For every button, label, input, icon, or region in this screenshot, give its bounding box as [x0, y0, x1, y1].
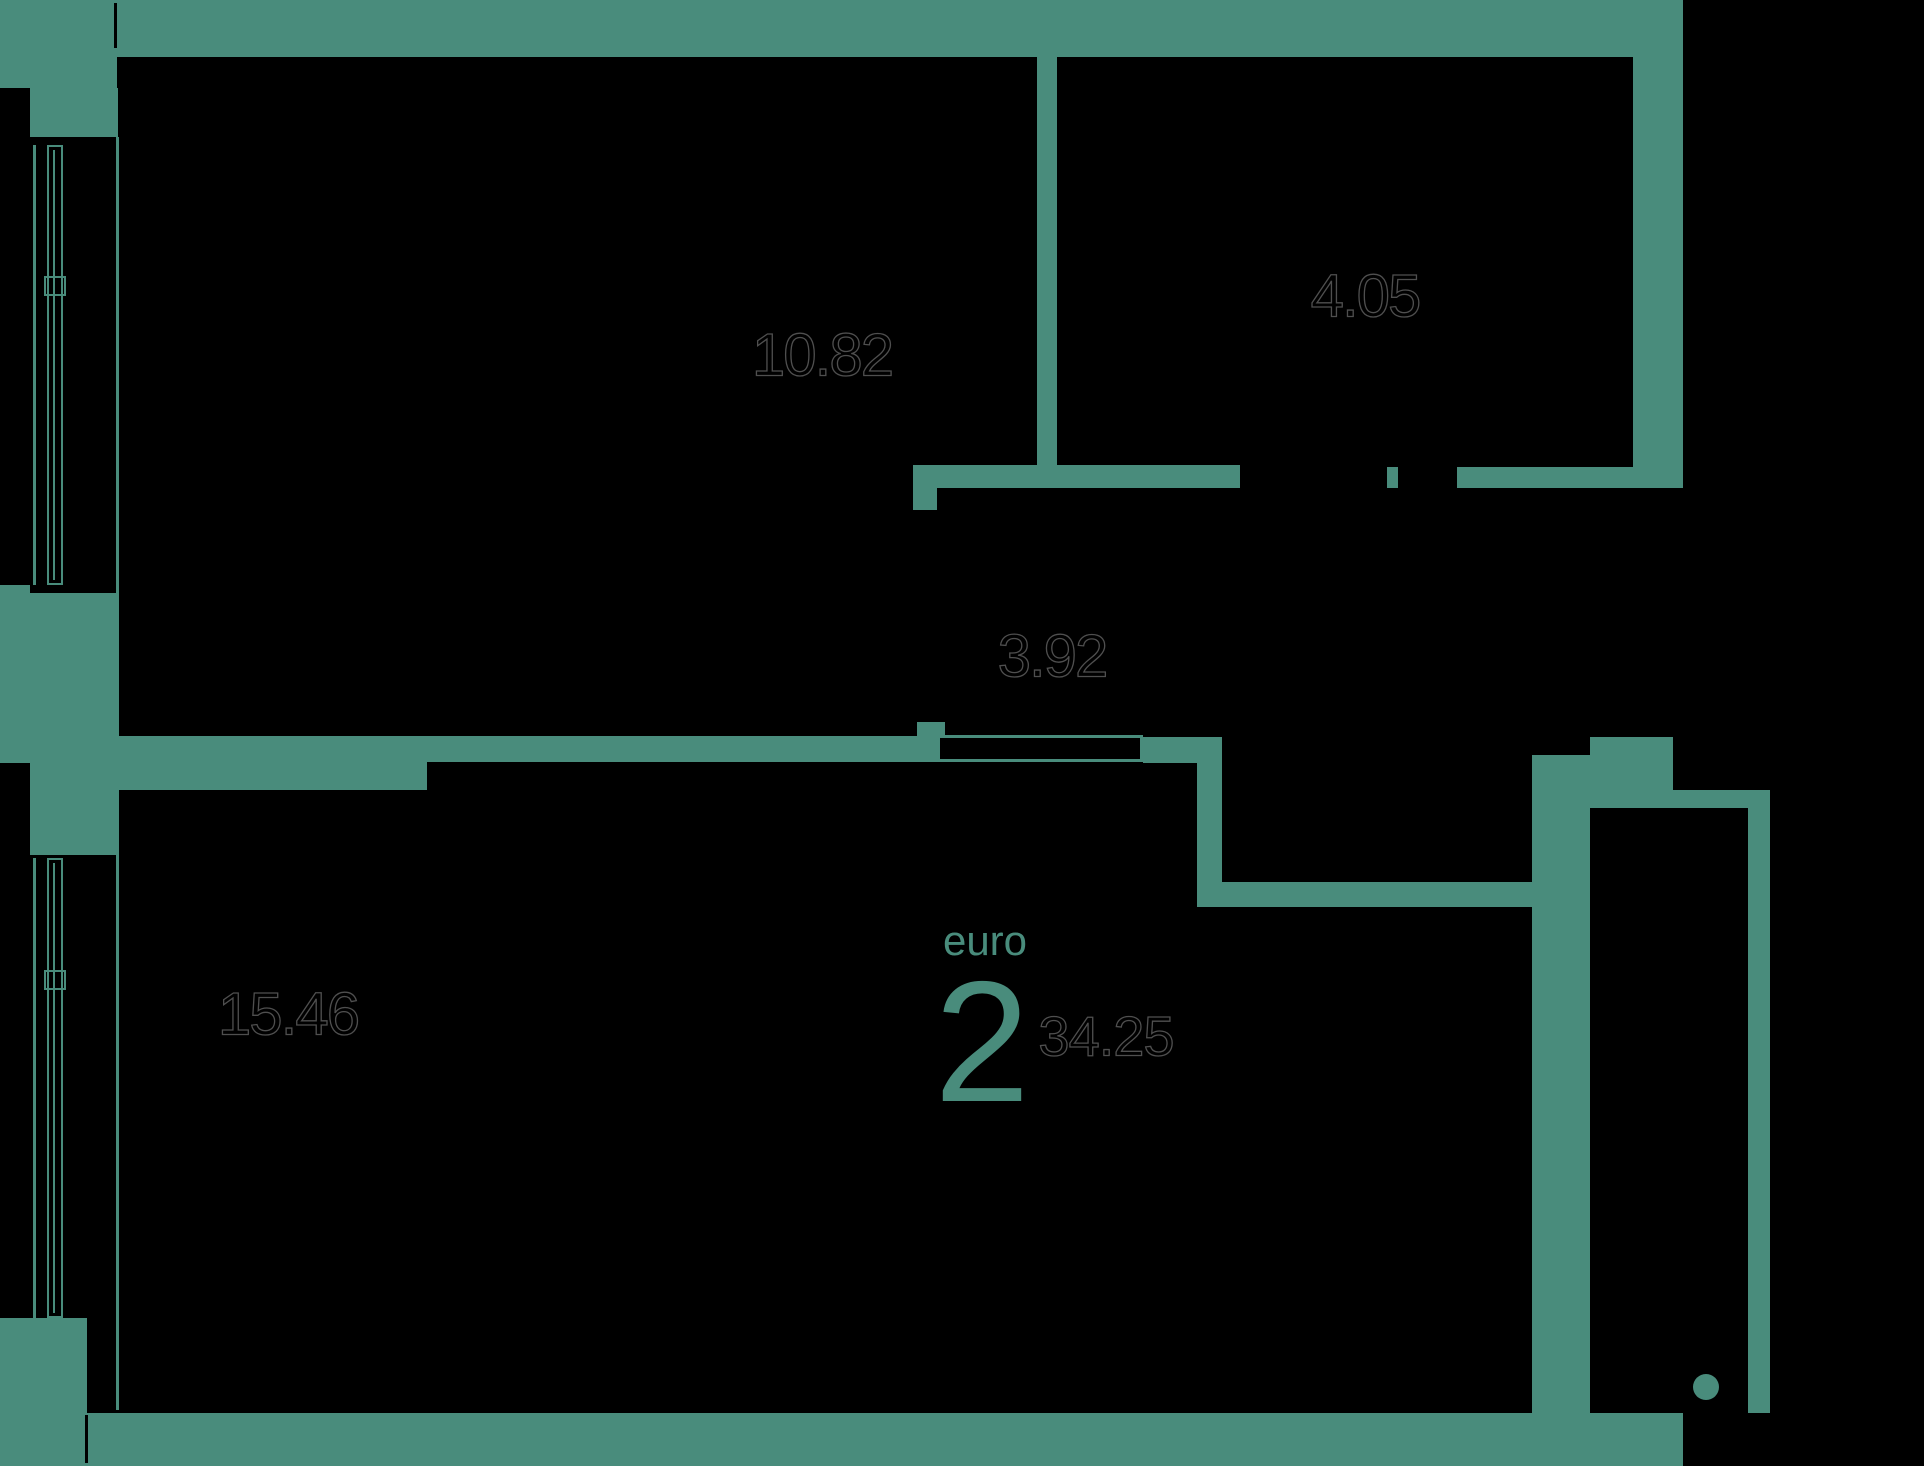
window-2-glass-line	[53, 863, 55, 1313]
wall-bottom	[87, 1413, 1683, 1466]
wall-hall-top-stub	[913, 488, 937, 510]
window-2-sill-line	[33, 858, 36, 1318]
wall-door-jamb	[1387, 467, 1398, 488]
window-1-sill-line	[33, 145, 36, 585]
wall-bathroom-bottom	[1457, 467, 1683, 488]
unit-rooms-count: 2	[934, 943, 1030, 1141]
wall-balcony-top	[1673, 790, 1770, 808]
room-top-area-label: 10.82	[752, 321, 892, 390]
wall-entry-block	[1590, 737, 1673, 808]
wall-joint-line-top	[114, 3, 117, 48]
wall-balcony-left	[1532, 755, 1590, 1413]
wall-partition-bathroom	[1037, 57, 1057, 465]
window-1-frame	[47, 145, 63, 585]
window-1-sash-joint	[44, 276, 66, 296]
wall-balcony-right	[1748, 808, 1770, 1413]
wall-divider-thick	[116, 736, 427, 790]
wall-joint-line-bottom	[85, 1415, 88, 1463]
wall-pier-top-left-b	[30, 88, 118, 137]
wall-pier-bottom-left	[0, 1318, 87, 1466]
wall-pier-left-mid-a	[0, 585, 30, 763]
wall-pier-top-left-a	[0, 0, 117, 88]
wall-divider-thin	[427, 736, 937, 762]
wall-top	[117, 0, 1683, 57]
door-opening	[937, 735, 1143, 762]
hallway-area-label: 3.92	[998, 622, 1107, 691]
wall-divider-right	[1143, 737, 1222, 763]
bathroom-area-label: 4.05	[1311, 262, 1420, 331]
window-1-glass-line	[53, 150, 55, 580]
floor-plan: 10.82 4.05 3.92 15.46 euro 2 34.25	[0, 0, 1924, 1466]
room-bottom-area-label: 15.46	[218, 980, 358, 1049]
wall-hall-horizontal	[1197, 882, 1540, 907]
wall-inner-line-left	[116, 137, 119, 1410]
balcony-door-pivot-dot	[1693, 1374, 1719, 1400]
unit-total-area: 34.25	[1038, 1004, 1173, 1069]
wall-right	[1633, 57, 1683, 488]
window-2-frame	[47, 858, 63, 1318]
window-2-sash-joint	[44, 970, 66, 990]
wall-hall-top	[913, 465, 1240, 488]
wall-pier-left-mid-b	[30, 593, 118, 855]
